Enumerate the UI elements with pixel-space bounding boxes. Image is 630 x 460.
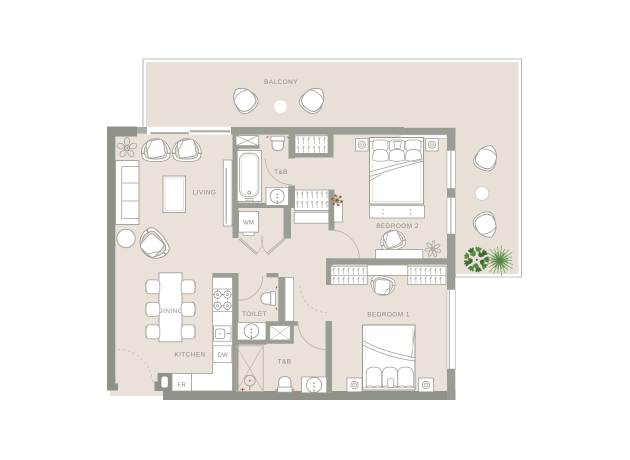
svg-text:T&B: T&B: [278, 359, 292, 366]
svg-text:WM: WM: [243, 221, 254, 227]
svg-text:BEDROOM 2: BEDROOM 2: [376, 223, 419, 230]
svg-text:FR: FR: [178, 383, 187, 389]
svg-text:DINING: DINING: [158, 308, 183, 315]
svg-text:BEDROOM 1: BEDROOM 1: [367, 311, 410, 318]
svg-text:LIVING: LIVING: [193, 190, 217, 197]
svg-text:KITCHEN: KITCHEN: [174, 352, 205, 359]
svg-text:BALCONY: BALCONY: [264, 79, 298, 86]
svg-text:T&B: T&B: [274, 169, 288, 176]
svg-text:TOILET: TOILET: [242, 311, 267, 318]
svg-text:DW: DW: [218, 353, 229, 359]
